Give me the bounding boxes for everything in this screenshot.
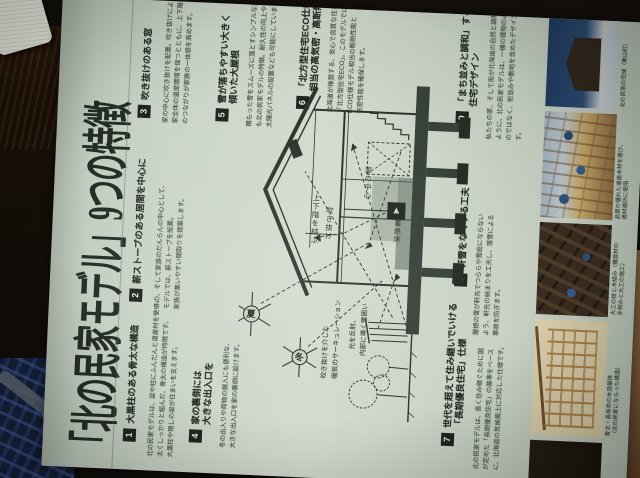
section-heading: 吹き抜けのある窓: [140, 28, 155, 100]
section-number-badge: 2: [129, 288, 143, 302]
beam-texture: [536, 222, 612, 317]
photo-caption: 品質の優れた道産木材を選び、 適材適所に使用: [615, 141, 633, 220]
section-number-badge: 3: [137, 105, 151, 119]
diagram-label-void: 吹き抜け: [322, 206, 335, 256]
diagram-label-snowfence: 光を反射、: [348, 316, 359, 349]
section-number-badge: 7: [441, 433, 455, 447]
roof-outline: [260, 86, 316, 296]
frame-grid: [544, 329, 599, 429]
section-body-line: 家族が集いやすい間取りを提案します。: [173, 195, 188, 310]
strip-photo-carpenters: [536, 222, 612, 317]
sun-winter-label: 冬: [294, 350, 304, 363]
photographed-brochure: 「北の民家モデル」9つの特徴 1 大黒柱のある骨太な構造 北の民家モデルは、梁や…: [0, 0, 640, 478]
photo-caption: 大工の技と木組み（構造材の 手刻みと大工の施工）: [611, 243, 629, 316]
strip-photo-interior: [528, 440, 602, 478]
trees: [348, 355, 390, 410]
foundation-piles: [421, 116, 471, 285]
strip-photo-finished-house: [545, 14, 621, 109]
section-heading: 大きな出入口を: [201, 362, 215, 425]
sun-summer-label: 夏: [246, 307, 256, 320]
snow-fence: [364, 318, 408, 345]
diagram-label-house-center: 家の中心: [361, 166, 374, 218]
section-number-badge: 4: [189, 429, 203, 443]
photo-caption: 北の民家の完成（栗山町）: [620, 40, 630, 107]
diagram-label-heat-floor: 蓄熱床: [390, 219, 402, 259]
photo-caption: 骨太・長寿命の木造躯体 （北の民家にならった構造）: [605, 363, 623, 436]
section-number-badge: 5: [215, 108, 229, 122]
brochure-page: 「北の民家モデル」9つの特徴 1 大黒柱のある骨太な構造 北の民家モデルは、梁や…: [41, 0, 640, 478]
stairs: [369, 113, 410, 140]
page-tilt-wrapper: 「北の民家モデル」9つの特徴 1 大黒柱のある骨太な構造 北の民家モデルは、梁や…: [0, 0, 640, 478]
section-heading: 傾いた大屋根: [228, 50, 242, 104]
strip-photo-timber-frame: [530, 319, 607, 438]
strip-photo-construction: [540, 111, 617, 220]
section-body-line: 事故を防ぎます。: [492, 285, 504, 336]
house-cross-section-diagram: [234, 70, 500, 431]
section-body-line: す。: [515, 129, 525, 142]
house-silhouette: [565, 37, 602, 92]
section-number-badge: 1: [123, 428, 137, 442]
